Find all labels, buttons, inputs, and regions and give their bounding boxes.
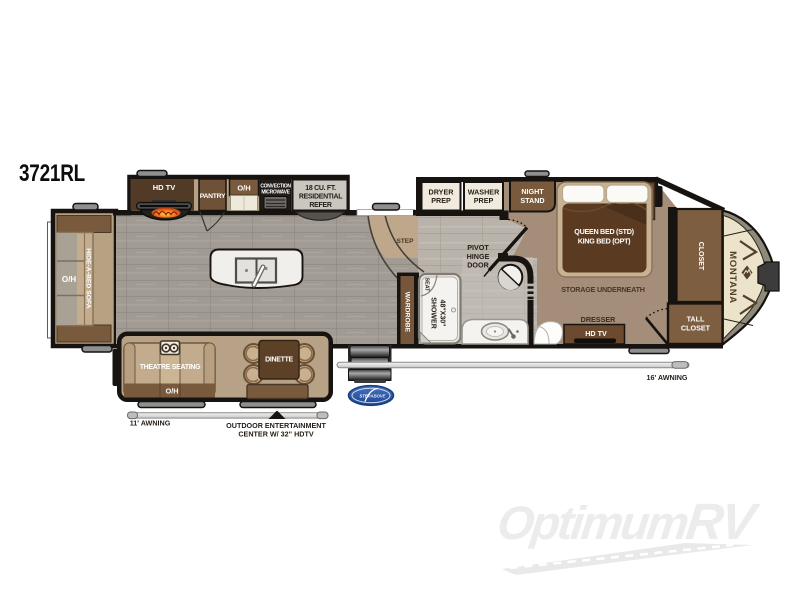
svg-text:HD TV: HD TV: [585, 329, 607, 338]
svg-text:11' AWNING: 11' AWNING: [130, 419, 171, 428]
svg-text:O/H: O/H: [166, 387, 179, 396]
svg-text:HD TV: HD TV: [153, 183, 176, 192]
svg-text:PREP: PREP: [431, 196, 451, 205]
svg-text:CLOSET: CLOSET: [697, 242, 704, 271]
svg-text:DINETTE: DINETTE: [265, 357, 293, 364]
svg-text:THEATRE SEATING: THEATRE SEATING: [140, 364, 201, 371]
svg-text:STEP: STEP: [397, 238, 414, 245]
svg-text:SHOWER: SHOWER: [430, 297, 437, 329]
svg-text:PANTRY: PANTRY: [200, 193, 226, 200]
svg-text:CENTER W/ 32" HDTV: CENTER W/ 32" HDTV: [238, 430, 313, 439]
svg-text:NIGHT: NIGHT: [521, 187, 544, 196]
svg-text:OptimumRV: OptimumRV: [494, 493, 762, 550]
svg-text:PIVOT: PIVOT: [467, 243, 489, 252]
svg-text:RESIDENTIAL: RESIDENTIAL: [299, 194, 343, 201]
svg-text:MONTANA: MONTANA: [727, 251, 738, 304]
svg-text:O/H: O/H: [62, 275, 76, 284]
svg-text:ABOVE: ABOVE: [370, 394, 386, 399]
svg-text:PREP: PREP: [474, 196, 494, 205]
svg-text:REFER: REFER: [309, 202, 331, 209]
svg-text:3721RL: 3721RL: [19, 159, 85, 187]
svg-text:SEAT: SEAT: [424, 278, 430, 293]
svg-text:STEP: STEP: [360, 394, 371, 399]
svg-text:DOOR: DOOR: [467, 261, 489, 270]
svg-text:WARDROBE: WARDROBE: [404, 292, 411, 333]
svg-text:QUEEN BED (STD): QUEEN BED (STD): [574, 227, 634, 236]
svg-text:CLOSET: CLOSET: [681, 324, 711, 333]
svg-text:18 CU. FT.: 18 CU. FT.: [305, 185, 336, 192]
svg-text:STAND: STAND: [520, 196, 544, 205]
svg-text:O/H: O/H: [237, 184, 250, 193]
svg-text:KING BED (OPT): KING BED (OPT): [578, 237, 631, 246]
svg-text:48"X30": 48"X30": [439, 300, 446, 327]
svg-text:HIDE-A-BED SOFA: HIDE-A-BED SOFA: [85, 248, 92, 309]
svg-text:STORAGE UNDERNEATH: STORAGE UNDERNEATH: [561, 285, 645, 294]
svg-text:TALL: TALL: [687, 315, 705, 324]
svg-text:16' AWNING: 16' AWNING: [647, 373, 688, 382]
svg-text:HINGE: HINGE: [467, 252, 490, 261]
svg-text:DRESSER: DRESSER: [581, 315, 617, 324]
svg-text:MICROWAVE: MICROWAVE: [261, 190, 290, 196]
